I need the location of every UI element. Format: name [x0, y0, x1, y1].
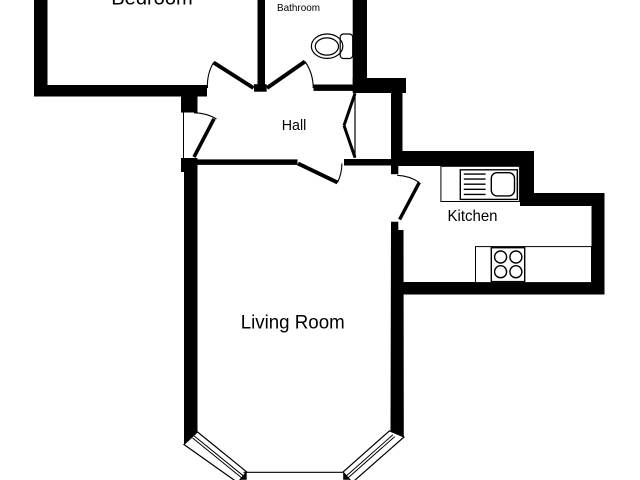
svg-text:Bathroom: Bathroom [277, 3, 320, 14]
svg-text:Kitchen: Kitchen [448, 208, 498, 225]
svg-text:Hall: Hall [282, 117, 307, 134]
svg-text:Bedroom: Bedroom [111, 0, 193, 9]
svg-text:Living Room: Living Room [241, 311, 345, 333]
